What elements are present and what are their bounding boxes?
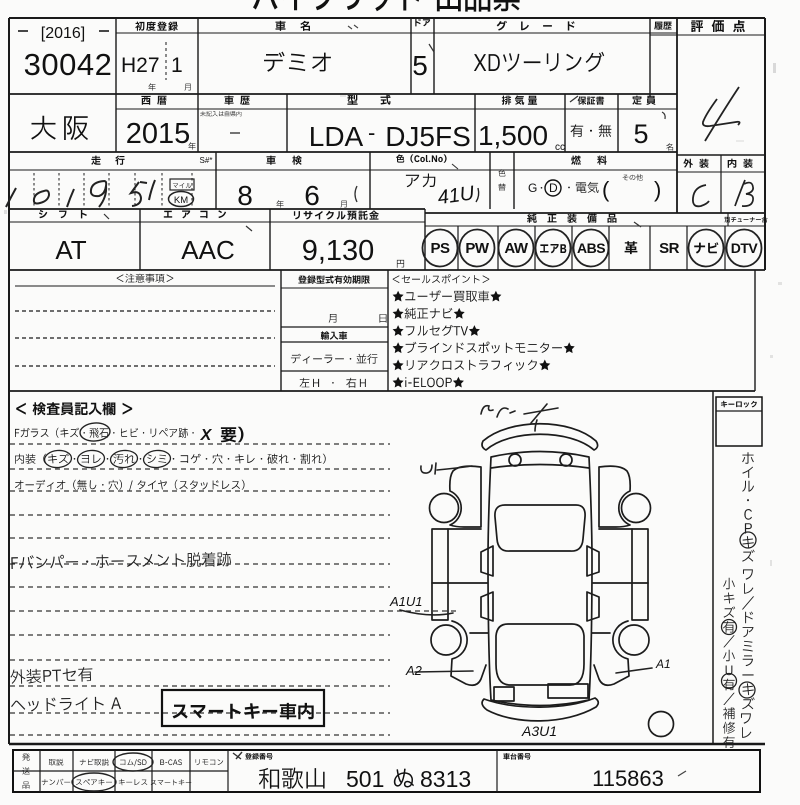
svg-text:115863: 115863 <box>592 766 664 791</box>
svg-text:(: ( <box>602 177 610 202</box>
svg-text:AT: AT <box>55 235 86 265</box>
svg-text:S#*: S#* <box>200 156 213 165</box>
svg-text:AAC: AAC <box>181 235 234 265</box>
svg-text:8: 8 <box>237 180 253 211</box>
svg-text:9,130: 9,130 <box>302 235 375 267</box>
svg-text:cc: cc <box>555 142 565 153</box>
svg-text:D: D <box>549 181 558 195</box>
svg-text:ABS: ABS <box>577 240 605 256</box>
svg-text:30042: 30042 <box>24 47 113 82</box>
svg-text:1,500: 1,500 <box>478 120 548 151</box>
svg-text:1: 1 <box>171 54 183 77</box>
svg-text:DTV: DTV <box>731 240 759 256</box>
svg-text:A3U1: A3U1 <box>521 723 557 739</box>
svg-text:LDA: LDA <box>309 121 364 152</box>
svg-text:2015: 2015 <box>126 118 191 150</box>
svg-text:AW: AW <box>504 240 529 257</box>
svg-text:5: 5 <box>633 119 648 149</box>
svg-text:H27: H27 <box>121 54 160 77</box>
svg-text:SR: SR <box>659 240 680 257</box>
svg-text:DJ5FS: DJ5FS <box>385 121 471 152</box>
svg-text:[2016]: [2016] <box>41 25 85 42</box>
svg-text:8313: 8313 <box>420 766 471 792</box>
svg-text:-: - <box>368 120 375 145</box>
svg-text:5: 5 <box>412 50 428 81</box>
svg-text:A2: A2 <box>405 663 423 678</box>
svg-text:KM: KM <box>174 195 188 206</box>
svg-text:): ) <box>654 177 661 202</box>
svg-text:A1U1: A1U1 <box>389 594 423 609</box>
svg-text:A1: A1 <box>655 657 671 671</box>
svg-text:PW: PW <box>465 240 490 257</box>
svg-text:501: 501 <box>346 766 384 792</box>
svg-text:G: G <box>528 181 537 195</box>
svg-text:X: X <box>200 427 213 444</box>
svg-text:6: 6 <box>304 180 320 211</box>
svg-text:PS: PS <box>430 240 450 257</box>
